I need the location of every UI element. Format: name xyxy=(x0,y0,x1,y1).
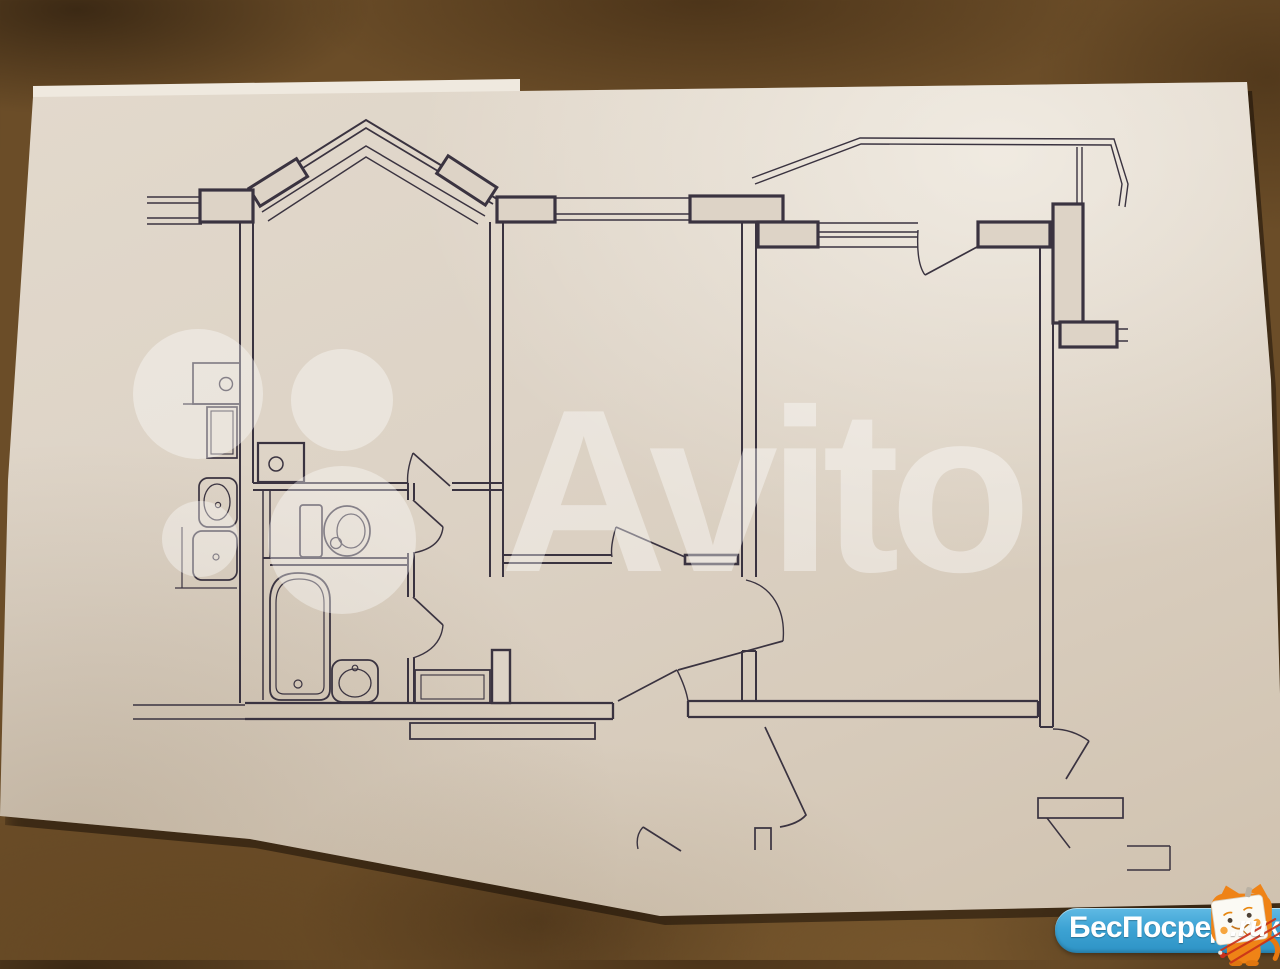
badge-domain-suffix: .ru xyxy=(1230,911,1267,944)
site-badge: БесПосредника xyxy=(0,0,1280,960)
scene: Avito БесПосредника xyxy=(0,0,1280,960)
photo-of-floor-plan: { "photo": { "scene": "paper apartment f… xyxy=(0,0,1280,960)
